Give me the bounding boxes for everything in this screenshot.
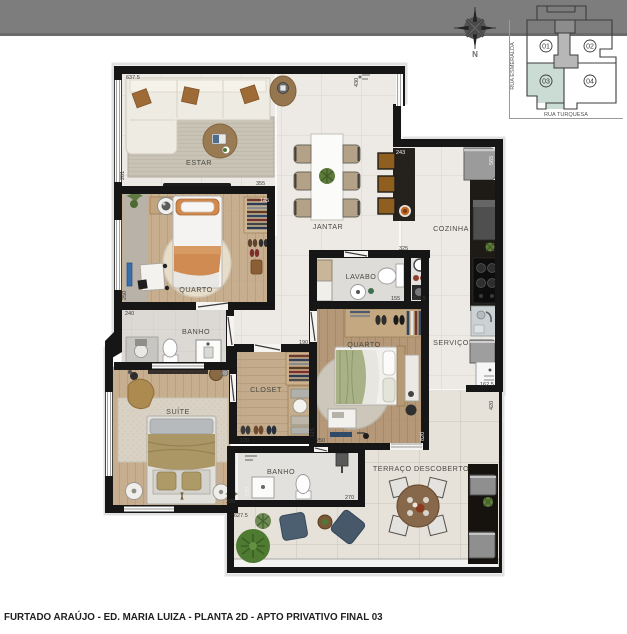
svg-text:162.5: 162.5 [480, 382, 494, 388]
svg-text:170: 170 [240, 438, 249, 444]
svg-text:155: 155 [391, 296, 400, 302]
svg-text:FURTADO ARAÚJO - ED. MARIA LUI: FURTADO ARAÚJO - ED. MARIA LUIZA - PLANT… [4, 611, 383, 623]
svg-text:N: N [472, 50, 478, 59]
svg-text:325: 325 [399, 246, 408, 252]
svg-text:430: 430 [354, 78, 360, 87]
svg-text:04: 04 [586, 79, 594, 86]
svg-text:420: 420 [489, 401, 495, 410]
svg-text:170: 170 [245, 487, 251, 496]
svg-text:BANHO: BANHO [182, 327, 210, 336]
svg-text:BANHO: BANHO [267, 467, 295, 476]
svg-text:637.5: 637.5 [126, 75, 140, 81]
svg-text:220: 220 [226, 499, 235, 505]
svg-text:145: 145 [260, 198, 269, 204]
svg-text:250: 250 [122, 291, 128, 300]
svg-text:250: 250 [316, 438, 325, 444]
svg-text:243: 243 [396, 150, 405, 156]
svg-text:240: 240 [125, 311, 134, 317]
svg-text:355: 355 [256, 181, 265, 187]
svg-text:RUA ESMERALDA: RUA ESMERALDA [510, 42, 516, 90]
svg-text:02: 02 [586, 44, 594, 51]
svg-text:565: 565 [489, 156, 495, 165]
svg-text:QUARTO: QUARTO [347, 340, 381, 349]
svg-text:RUA TURQUESA: RUA TURQUESA [544, 112, 588, 118]
svg-text:03: 03 [542, 79, 550, 86]
svg-text:115: 115 [310, 428, 316, 437]
svg-text:ESTAR: ESTAR [186, 158, 212, 167]
svg-text:COZINHA: COZINHA [433, 224, 469, 233]
svg-text:TERRAÇO DESCOBERTO: TERRAÇO DESCOBERTO [373, 464, 469, 473]
svg-text:270: 270 [345, 495, 354, 501]
svg-text:JANTAR: JANTAR [313, 222, 343, 231]
svg-text:QUARTO: QUARTO [179, 285, 213, 294]
svg-text:LAVABO: LAVABO [346, 272, 377, 281]
svg-text:01: 01 [542, 44, 550, 51]
svg-text:SERVIÇO: SERVIÇO [433, 338, 469, 347]
svg-text:CLOSET: CLOSET [250, 385, 282, 394]
svg-text:820: 820 [420, 432, 426, 441]
svg-text:281: 281 [120, 171, 126, 180]
svg-text:627.5: 627.5 [234, 513, 248, 519]
svg-text:SUÍTE: SUÍTE [166, 407, 190, 416]
svg-text:207.5: 207.5 [412, 296, 426, 302]
svg-text:190: 190 [299, 340, 308, 346]
